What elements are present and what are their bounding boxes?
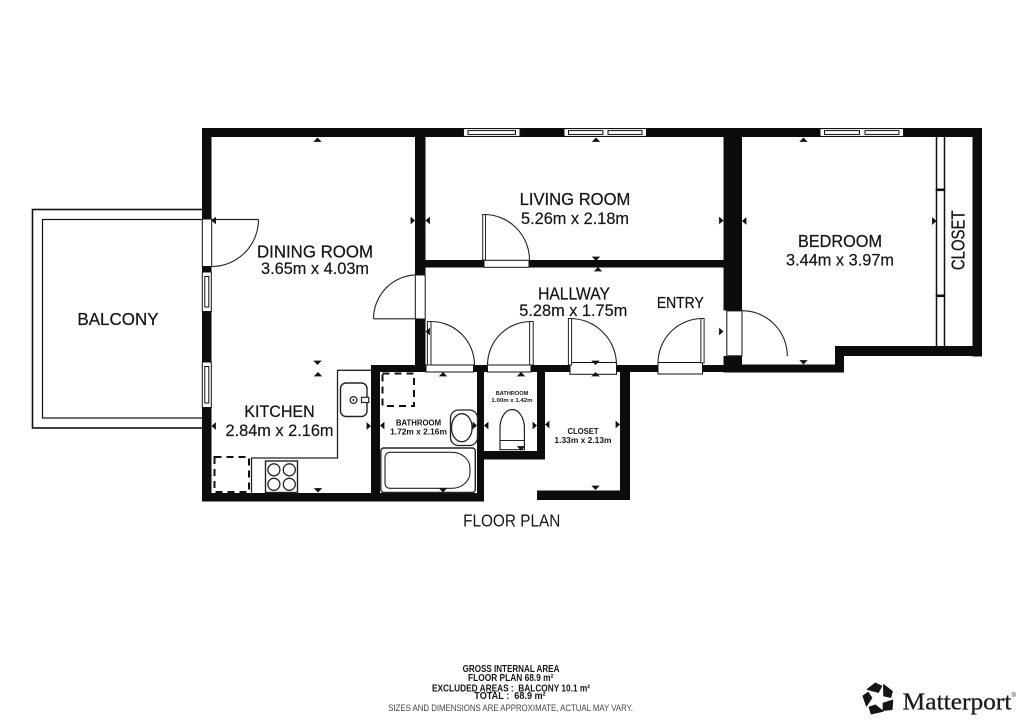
- svg-text:1.33m x 2.13m: 1.33m x 2.13m: [554, 436, 611, 445]
- svg-text:FLOOR PLAN 68.9 m²: FLOOR PLAN 68.9 m²: [468, 673, 554, 684]
- svg-text:TOTAL : 68.9 m²: TOTAL : 68.9 m²: [474, 691, 546, 702]
- svg-text:BALCONY: BALCONY: [77, 309, 159, 329]
- svg-text:BEDROOM: BEDROOM: [798, 231, 882, 251]
- svg-text:1.72m x 2.16m: 1.72m x 2.16m: [390, 428, 447, 437]
- svg-text:5.26m x 2.18m: 5.26m x 2.18m: [521, 210, 629, 228]
- svg-text:BATHROOM: BATHROOM: [496, 391, 529, 397]
- svg-text:Matterport: Matterport: [903, 688, 1012, 715]
- svg-text:2.84m x 2.16m: 2.84m x 2.16m: [226, 422, 334, 440]
- svg-text:BATHROOM: BATHROOM: [396, 418, 441, 427]
- svg-text:CLOSET: CLOSET: [948, 211, 969, 271]
- svg-text:3.65m x 4.03m: 3.65m x 4.03m: [261, 260, 369, 278]
- svg-text:ENTRY: ENTRY: [657, 295, 704, 312]
- svg-text:KITCHEN: KITCHEN: [244, 403, 314, 421]
- svg-text:HALLWAY: HALLWAY: [538, 284, 610, 304]
- svg-text:1.00m x 1.42m: 1.00m x 1.42m: [491, 398, 532, 404]
- svg-text:DINING ROOM: DINING ROOM: [257, 241, 373, 261]
- svg-text:5.28m x 1.75m: 5.28m x 1.75m: [519, 302, 627, 320]
- svg-text:3.44m x 3.97m: 3.44m x 3.97m: [786, 252, 894, 270]
- svg-text:CLOSET: CLOSET: [567, 427, 598, 436]
- svg-text:FLOOR PLAN: FLOOR PLAN: [463, 510, 560, 530]
- svg-text:®: ®: [1012, 692, 1017, 699]
- svg-text:LIVING ROOM: LIVING ROOM: [520, 189, 631, 209]
- svg-text:SIZES AND DIMENSIONS ARE APPRO: SIZES AND DIMENSIONS ARE APPROXIMATE, AC…: [388, 703, 633, 713]
